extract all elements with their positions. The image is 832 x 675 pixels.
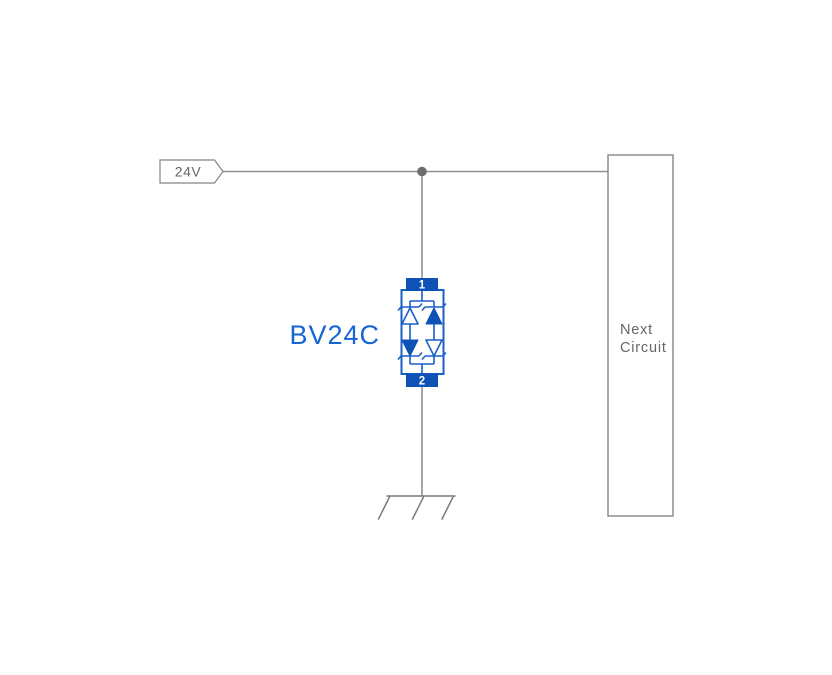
tvs-pin2-label: 2	[419, 376, 425, 388]
supply-net-label: 24V	[175, 164, 202, 180]
schematic-canvas: 24V Next Circuit 1 2	[0, 0, 832, 675]
tvs-pin1-label: 1	[419, 280, 426, 292]
component-label: BV24C	[289, 320, 380, 350]
next-circuit-block: Next Circuit	[608, 155, 673, 516]
next-circuit-label-line2: Circuit	[620, 340, 667, 356]
tvs-diode-component: 1 2 BV24	[289, 278, 446, 388]
next-circuit-label-line1: Next	[620, 322, 653, 338]
tvs-body	[402, 290, 444, 374]
circuit-diagram: 24V Next Circuit 1 2	[0, 0, 832, 675]
junction-dot	[417, 167, 427, 177]
ground-icon	[379, 496, 456, 519]
supply-net-flag: 24V	[160, 160, 223, 183]
